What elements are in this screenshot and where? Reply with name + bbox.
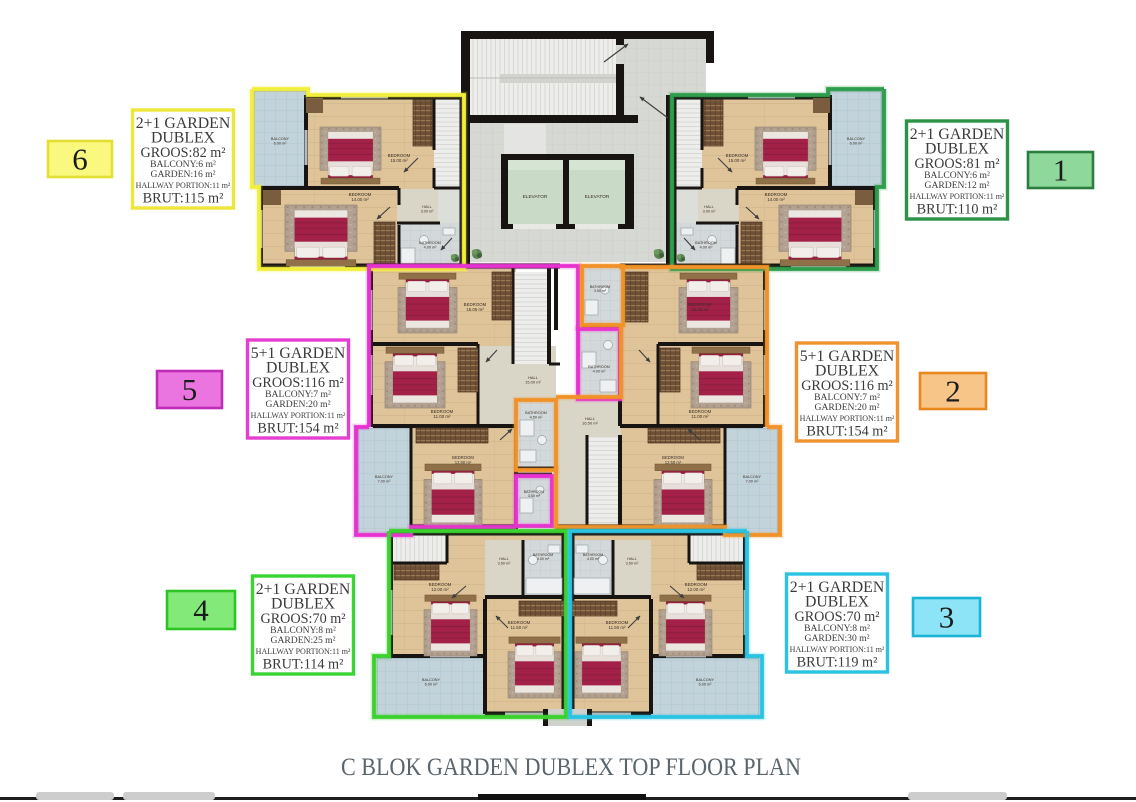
svg-text:BEDROOM12.50 m²: BEDROOM12.50 m² bbox=[452, 455, 474, 465]
svg-text:4: 4 bbox=[193, 593, 209, 628]
svg-text:ELEVATOR: ELEVATOR bbox=[585, 194, 610, 200]
svg-text:2+1 GARDENDUBLEXGROOS:70 m²BAL: 2+1 GARDENDUBLEXGROOS:70 m²BALCONY:8 m²G… bbox=[256, 581, 351, 673]
svg-text:BEDROOM15.00 m²: BEDROOM15.00 m² bbox=[726, 153, 749, 163]
svg-text:BEDROOM15.06 m²: BEDROOM15.06 m² bbox=[464, 302, 487, 312]
svg-text:BEDROOM14.00 m²: BEDROOM14.00 m² bbox=[765, 192, 788, 202]
svg-text:5+1 GARDENDUBLEXGROOS:116 m²BA: 5+1 GARDENDUBLEXGROOS:116 m²BALCONY:7 m²… bbox=[800, 348, 895, 440]
svg-text:BEDROOM11.00 m²: BEDROOM11.00 m² bbox=[431, 409, 454, 419]
svg-text:BEDROOM12.00 m²: BEDROOM12.00 m² bbox=[429, 582, 452, 592]
svg-text:ELEVATOR: ELEVATOR bbox=[523, 194, 548, 200]
svg-text:BEDROOM11.50 m²: BEDROOM11.50 m² bbox=[508, 620, 531, 630]
svg-text:1: 1 bbox=[1053, 153, 1069, 188]
svg-text:BEDROOM12.00 m²: BEDROOM12.00 m² bbox=[685, 582, 708, 592]
svg-text:C BLOK GARDEN DUBLEX TOP FLOOR: C BLOK GARDEN DUBLEX TOP FLOOR PLAN bbox=[341, 754, 801, 781]
svg-text:3: 3 bbox=[939, 600, 955, 635]
svg-text:2: 2 bbox=[945, 374, 961, 409]
svg-text:BEDROOM14.00 m²: BEDROOM14.00 m² bbox=[349, 192, 372, 202]
svg-text:2+1 GARDENDUBLEXGROOS:82 m²BAL: 2+1 GARDENDUBLEXGROOS:82 m²BALCONY:6 m²G… bbox=[136, 115, 231, 207]
svg-text:6: 6 bbox=[72, 142, 88, 177]
svg-text:5+1 GARDENDUBLEXGROOS:116 m²BA: 5+1 GARDENDUBLEXGROOS:116 m²BALCONY:7 m²… bbox=[251, 345, 346, 437]
svg-text:BEDROOM15.06 m²: BEDROOM15.06 m² bbox=[689, 302, 712, 312]
svg-text:BEDROOM12.50 m²: BEDROOM12.50 m² bbox=[662, 455, 684, 465]
svg-text:5: 5 bbox=[182, 372, 198, 407]
svg-text:BEDROOM11.00 m²: BEDROOM11.00 m² bbox=[689, 409, 712, 419]
svg-text:BEDROOM15.00 m²: BEDROOM15.00 m² bbox=[388, 153, 411, 163]
svg-text:BEDROOM11.50 m²: BEDROOM11.50 m² bbox=[606, 620, 629, 630]
svg-text:2+1 GARDENDUBLEXGROOS:81 m²BAL: 2+1 GARDENDUBLEXGROOS:81 m²BALCONY:6 m²G… bbox=[910, 126, 1005, 218]
svg-text:2+1 GARDENDUBLEXGROOS:70 m²BAL: 2+1 GARDENDUBLEXGROOS:70 m²BALCONY:8 m²G… bbox=[790, 579, 885, 671]
